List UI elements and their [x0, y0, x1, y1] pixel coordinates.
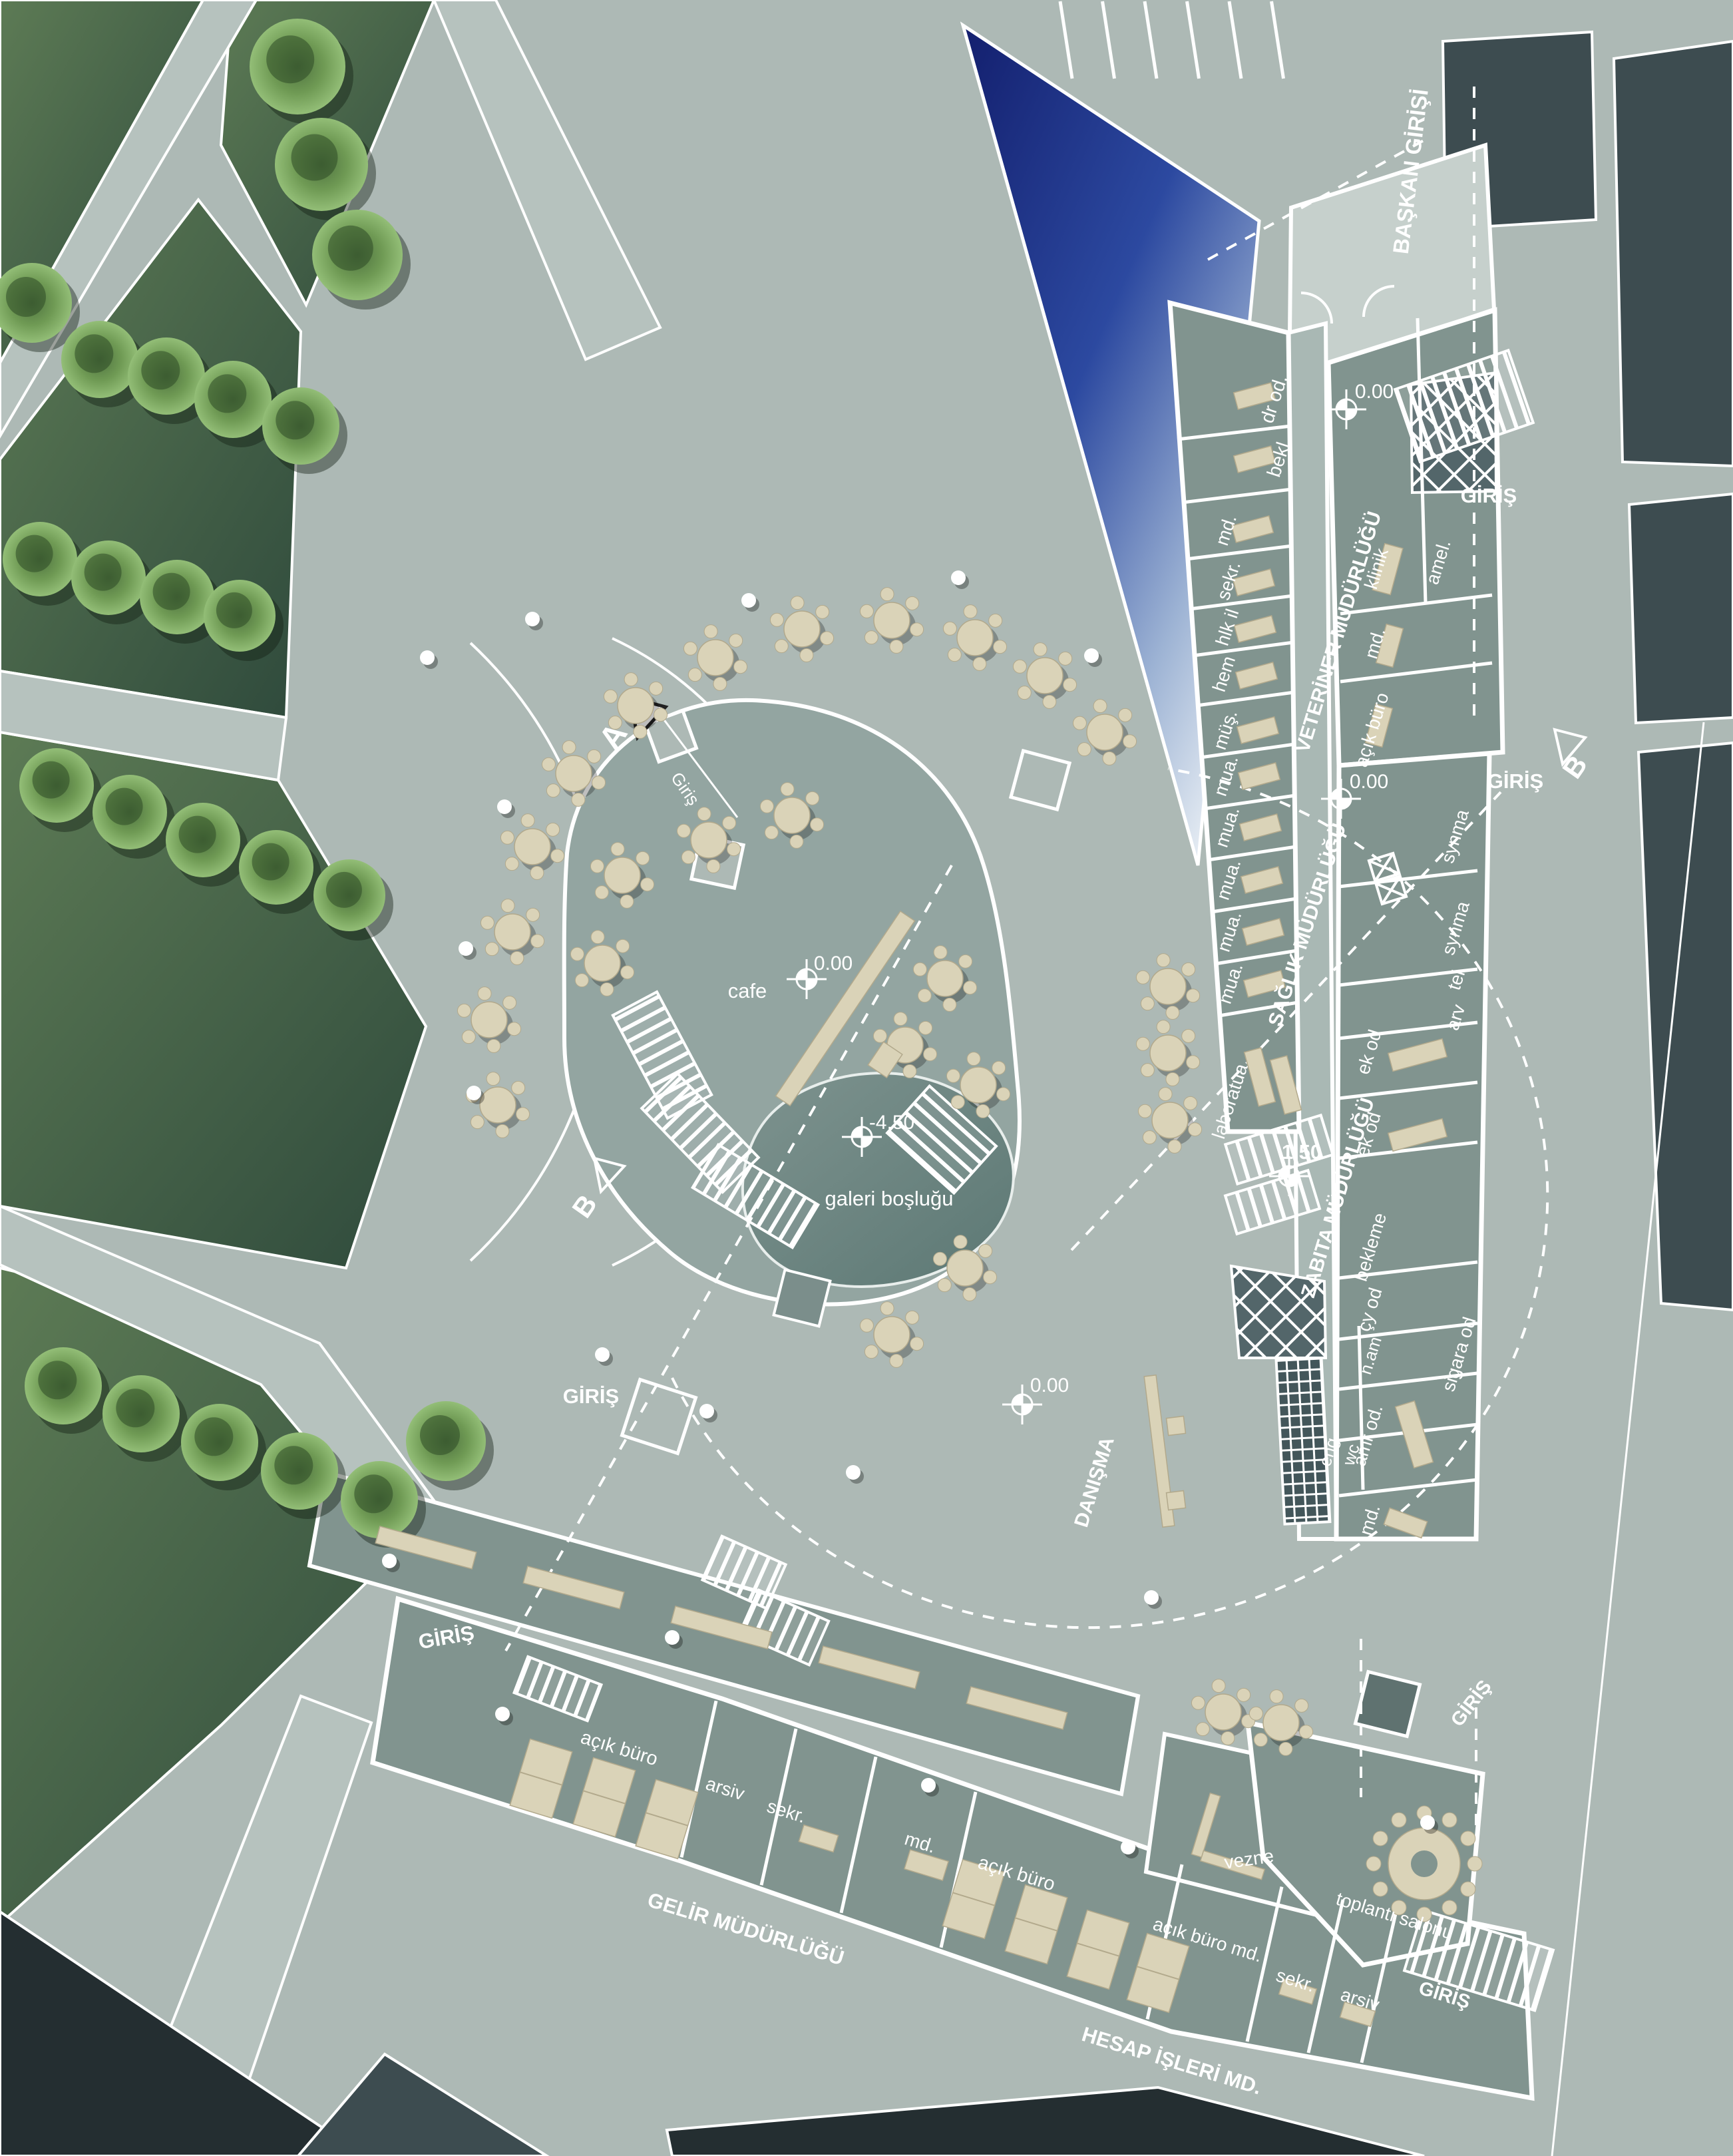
label-gi-ri: GİRİŞ — [1461, 484, 1517, 507]
desk — [1167, 1491, 1186, 1510]
label-0-00: 0.00 — [814, 953, 853, 974]
label-0-00: 0.00 — [1030, 1375, 1069, 1397]
label-0-00: 0.00 — [1355, 381, 1394, 403]
label-gi-ri: GİRİŞ — [563, 1385, 619, 1408]
context-building — [1614, 41, 1733, 466]
label-4-50: -4,50 — [869, 1112, 914, 1134]
label-gi-ri: GİRİŞ — [1487, 769, 1543, 793]
desk — [1167, 1416, 1186, 1436]
site-plan-drawing: BAŞKAN GİRİŞİGİRİŞGİRİŞGİRİŞGİRİŞGİRİŞGİ… — [0, 0, 1733, 2156]
plaza-kiosk — [1011, 751, 1069, 809]
context-building — [1629, 494, 1733, 723]
label-galeri-bo-lu-u: galeri boşluğu — [825, 1187, 953, 1210]
plaza-kiosk — [1356, 1672, 1420, 1737]
gallery-lift — [774, 1270, 831, 1327]
label-cafe: cafe — [728, 979, 767, 1002]
label-1-50: 1.50 — [1282, 1140, 1322, 1164]
label-0-00: 0.00 — [1350, 771, 1388, 793]
site-plan-canvas: BAŞKAN GİRİŞİGİRİŞGİRİŞGİRİŞGİRİŞGİRİŞGİ… — [0, 0, 1733, 2156]
